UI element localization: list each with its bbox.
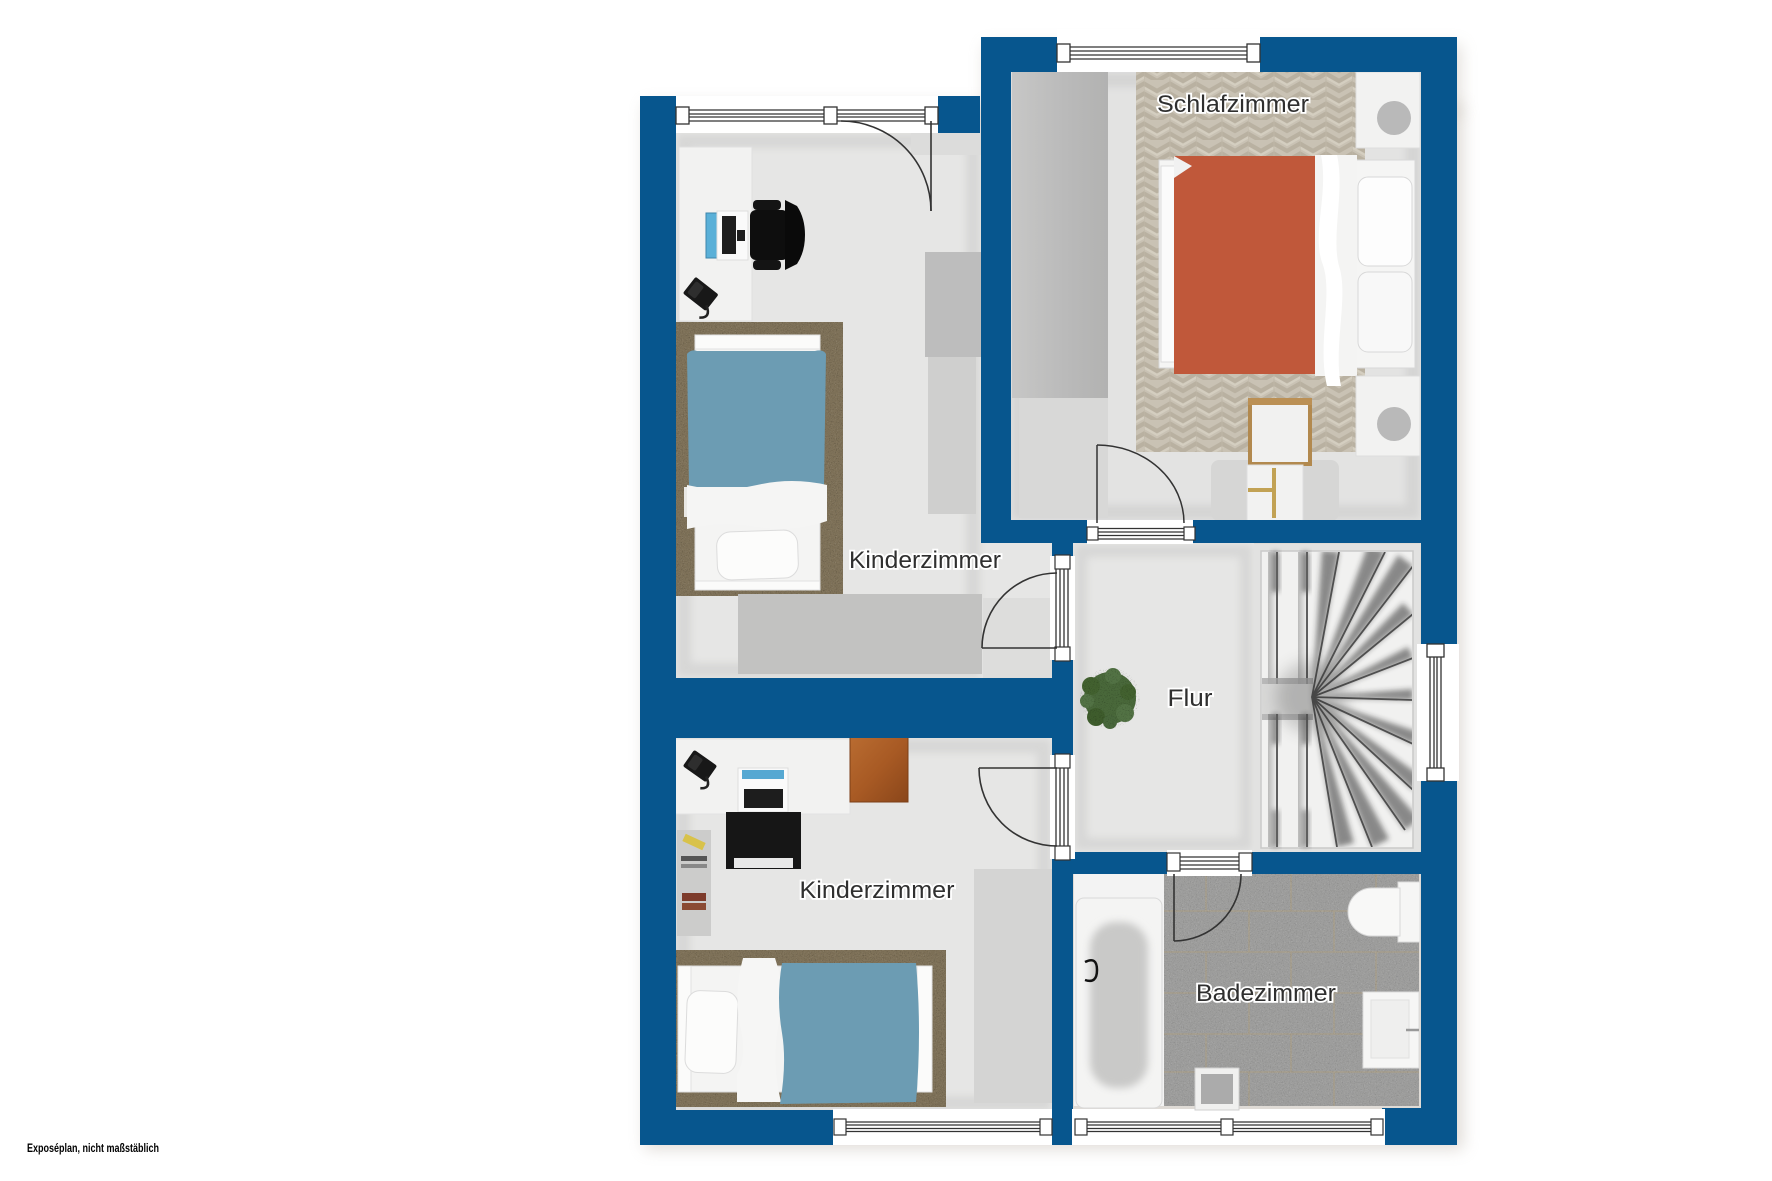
svg-text:Kinderzimmer: Kinderzimmer — [849, 547, 1001, 574]
svg-text:Kinderzimmer: Kinderzimmer — [800, 877, 955, 904]
svg-text:Flur: Flur — [1168, 685, 1213, 712]
svg-text:Schlafzimmer: Schlafzimmer — [1157, 91, 1309, 118]
svg-text:Exposéplan, nicht maßstäblich: Exposéplan, nicht maßstäblich — [27, 1143, 159, 1155]
svg-text:Badezimmer: Badezimmer — [1196, 980, 1336, 1007]
